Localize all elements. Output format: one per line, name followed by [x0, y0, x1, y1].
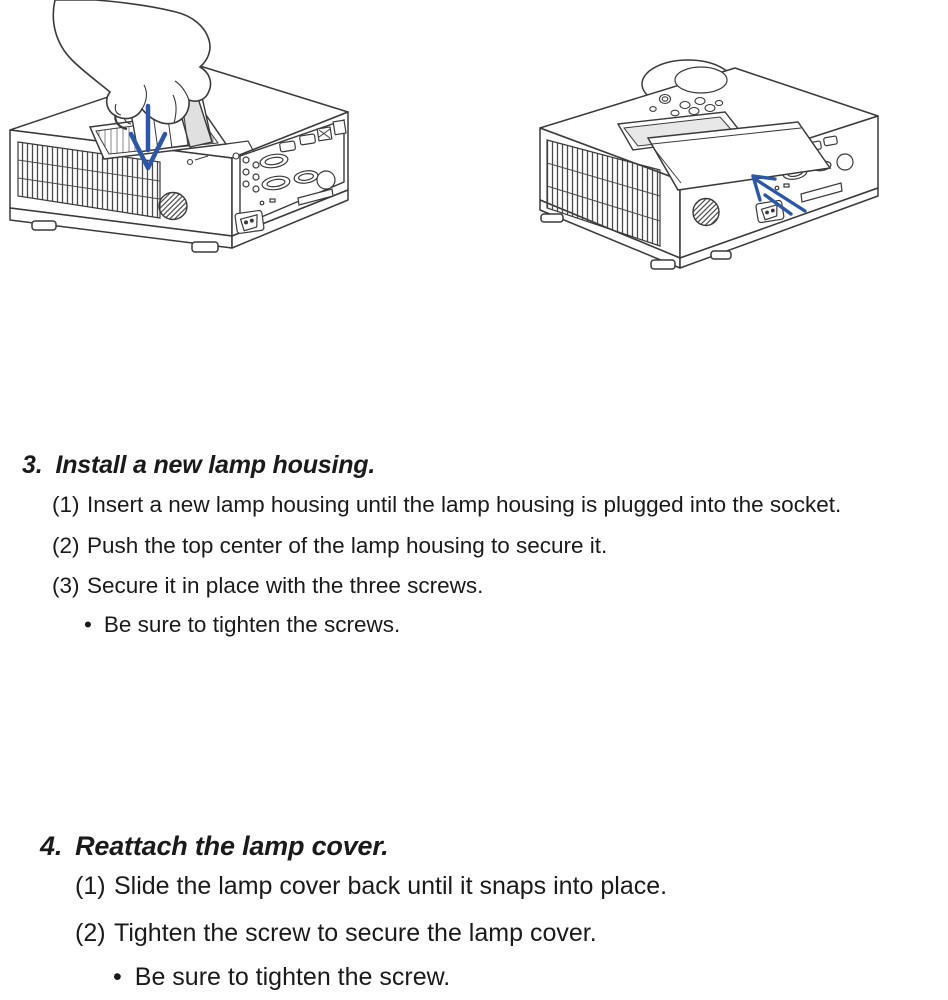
step-label: (1) — [52, 492, 87, 518]
bullet-icon: • — [113, 963, 122, 992]
step-label: (2) — [52, 533, 87, 559]
lens-opening — [675, 67, 727, 93]
speaker-grille — [693, 199, 719, 226]
section-title: Reattach the lamp cover. — [75, 831, 388, 862]
step-label: (3) — [52, 573, 87, 599]
step-label: (1) — [75, 872, 114, 901]
figure-reattach-lamp-cover — [515, 42, 945, 272]
step-text: Slide the lamp cover back until it snaps… — [114, 872, 667, 901]
section-number: 4. — [40, 831, 62, 862]
section-4-heading: 4. Reattach the lamp cover. — [40, 831, 388, 862]
step-item: (2) Tighten the screw to secure the lamp… — [75, 919, 597, 948]
hand — [53, 0, 210, 124]
power-inlet — [756, 200, 785, 223]
sensor-window — [317, 171, 335, 189]
note-item: • Be sure to tighten the screw. — [113, 963, 450, 992]
section-3-heading: 3. Install a new lamp housing. — [22, 451, 375, 480]
step-text: Push the top center of the lamp housing … — [87, 533, 607, 559]
step-item: (3) Secure it in place with the three sc… — [52, 573, 483, 599]
note-item: • Be sure to tighten the screws. — [84, 612, 400, 638]
note-text: Be sure to tighten the screws. — [104, 612, 400, 638]
sensor-window — [837, 154, 853, 170]
step-text: Insert a new lamp housing until the lamp… — [87, 492, 841, 518]
power-inlet — [235, 210, 265, 234]
step-item: (1) Insert a new lamp housing until the … — [52, 492, 841, 518]
figure-install-lamp-housing — [0, 0, 470, 285]
step-item: (1) Slide the lamp cover back until it s… — [75, 872, 667, 901]
section-title: Install a new lamp housing. — [55, 451, 375, 480]
speaker-grille — [159, 193, 187, 220]
manual-page: 3. Install a new lamp housing. (1) Inser… — [0, 0, 948, 1000]
step-text: Secure it in place with the three screws… — [87, 573, 483, 599]
step-text: Tighten the screw to secure the lamp cov… — [114, 919, 597, 948]
section-number: 3. — [22, 451, 42, 480]
note-text: Be sure to tighten the screw. — [135, 963, 450, 992]
bullet-icon: • — [84, 612, 92, 638]
step-item: (2) Push the top center of the lamp hous… — [52, 533, 607, 559]
step-label: (2) — [75, 919, 114, 948]
